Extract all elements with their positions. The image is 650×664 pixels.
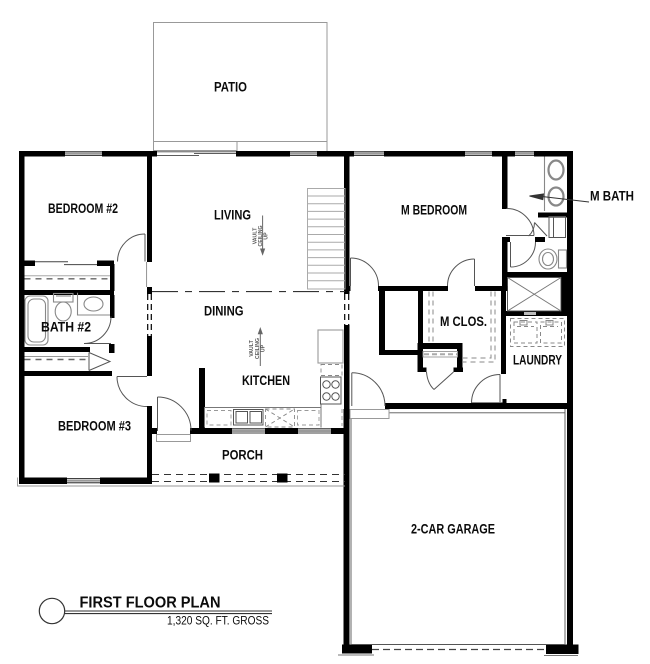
svg-text:FIRST FLOOR PLAN: FIRST FLOOR PLAN xyxy=(80,595,221,612)
svg-text:1,320 SQ. FT. GROSS: 1,320 SQ. FT. GROSS xyxy=(167,616,269,628)
svg-text:M BEDROOM: M BEDROOM xyxy=(401,203,467,218)
svg-text:BEDROOM #2: BEDROOM #2 xyxy=(48,201,118,216)
svg-text:BATH #2: BATH #2 xyxy=(41,320,91,335)
svg-text:UP: UP xyxy=(264,232,270,240)
svg-text:LIVING: LIVING xyxy=(214,208,251,223)
svg-text:M CLOS.: M CLOS. xyxy=(440,314,487,329)
svg-text:BEDROOM #3: BEDROOM #3 xyxy=(58,419,131,434)
svg-text:LAUNDRY: LAUNDRY xyxy=(513,353,562,368)
svg-text:PATIO: PATIO xyxy=(214,80,247,95)
svg-text:DINING: DINING xyxy=(204,304,244,319)
svg-text:KITCHEN: KITCHEN xyxy=(242,373,290,388)
svg-text:2-CAR GARAGE: 2-CAR GARAGE xyxy=(411,522,495,537)
svg-text:M BATH: M BATH xyxy=(590,189,634,204)
svg-text:PORCH: PORCH xyxy=(222,448,263,463)
svg-text:UP: UP xyxy=(260,344,266,352)
